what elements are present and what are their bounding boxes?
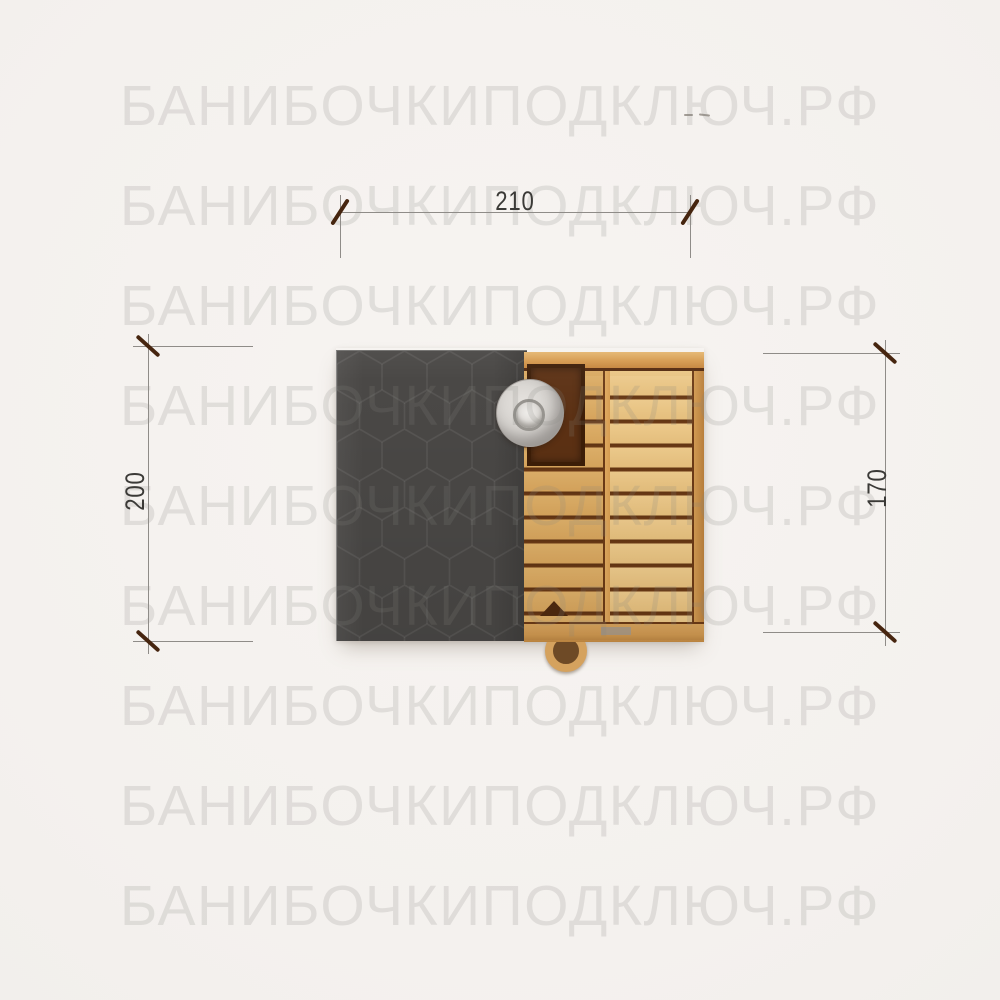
watermark-text: БАНИБОЧКИПОДКЛЮЧ.РФ	[0, 776, 1000, 836]
extension-line-left-top	[133, 346, 253, 347]
extension-line-top-left	[340, 195, 341, 258]
shingle-roof-section	[336, 350, 527, 641]
dimension-value-depth-right: 170	[862, 451, 890, 525]
dimension-tick	[680, 198, 700, 225]
dimension-tick	[873, 341, 898, 364]
dimension-value-depth-left: 200	[120, 454, 148, 528]
plank-column-right	[610, 371, 692, 622]
sauna-top-view-drawing	[336, 348, 704, 640]
dimension-tick	[136, 629, 161, 652]
plank-divider-rail	[603, 368, 610, 622]
faint-smudge	[699, 113, 710, 116]
watermark-text: БАНИБОЧКИПОДКЛЮЧ.РФ	[0, 276, 1000, 336]
dimension-line-right	[885, 340, 886, 646]
dimension-tick	[330, 198, 350, 225]
watermark-text: БАНИБОЧКИПОДКЛЮЧ.РФ	[0, 176, 1000, 236]
watermark-text: БАНИБОЧКИПОДКЛЮЧ.РФ	[0, 676, 1000, 736]
dimension-tick	[136, 334, 161, 357]
blueprint-canvas: БАНИБОЧКИПОДКЛЮЧ.РФ БАНИБОЧКИПОДКЛЮЧ.РФ …	[0, 0, 1000, 1000]
watermark-text: БАНИБОЧКИПОДКЛЮЧ.РФ	[0, 876, 1000, 936]
dimension-line-top	[338, 212, 692, 213]
roof-shading	[337, 351, 527, 641]
chimney-cap-hub	[513, 399, 545, 431]
latch-plate	[601, 627, 631, 635]
extension-line-right-top	[763, 353, 900, 354]
extension-line-top-right	[690, 195, 691, 258]
deck-right-frame	[692, 368, 704, 638]
extension-line-right-bottom	[763, 632, 900, 633]
dimension-value-width: 210	[470, 186, 560, 217]
roof-peak-marker	[540, 601, 568, 616]
extension-line-left-bottom	[133, 641, 253, 642]
faint-smudge	[684, 114, 693, 116]
dimension-tick	[873, 620, 898, 643]
watermark-text: БАНИБОЧКИПОДКЛЮЧ.РФ	[0, 76, 1000, 136]
dimension-line-left	[148, 334, 149, 654]
